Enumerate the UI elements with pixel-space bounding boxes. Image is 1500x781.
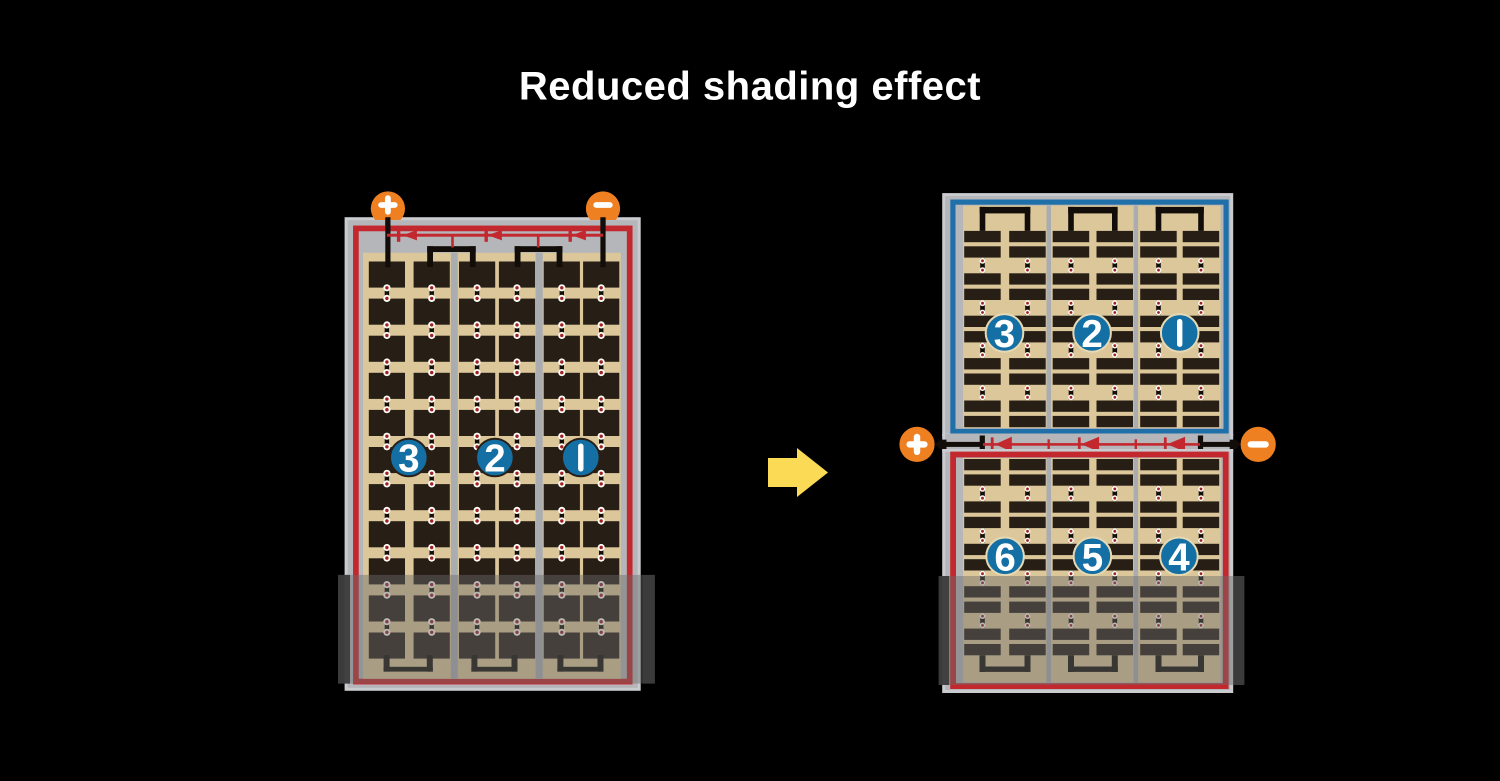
svg-text:6: 6: [994, 536, 1015, 579]
svg-text:2: 2: [1081, 313, 1102, 356]
svg-text:5: 5: [1082, 536, 1103, 579]
svg-text:2: 2: [484, 438, 505, 481]
svg-text:Reduced shading effect: Reduced shading effect: [519, 65, 981, 109]
svg-text:3: 3: [994, 313, 1015, 356]
svg-text:4: 4: [1168, 536, 1190, 579]
svg-text:3: 3: [398, 438, 419, 481]
